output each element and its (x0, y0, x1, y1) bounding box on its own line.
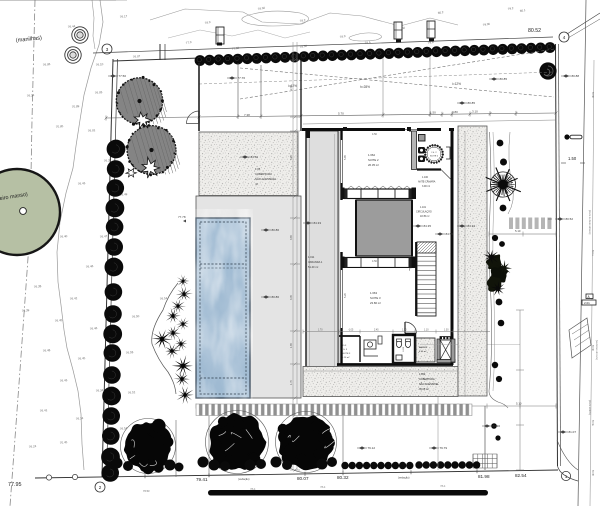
svg-text:NÃO ACESSÍVEL: NÃO ACESSÍVEL (419, 383, 439, 386)
svg-text:1.65: 1.65 (290, 343, 293, 348)
svg-text:5.85: 5.85 (344, 155, 347, 160)
svg-text:SUITE 3: SUITE 3 (342, 353, 351, 355)
svg-text:1.10: 1.10 (424, 330, 429, 332)
svg-text:3.10: 3.10 (472, 110, 478, 114)
svg-text:80.86: 80.86 (272, 295, 280, 299)
svg-text:I.S. 3: I.S. 3 (342, 349, 348, 351)
svg-text:3: 3 (106, 47, 109, 52)
svg-text:76.53: 76.53 (143, 489, 150, 493)
svg-text:79.41: 79.41 (196, 477, 208, 482)
svg-text:1.70: 1.70 (318, 330, 323, 332)
svg-text:(muro de beto armado): (muro de beto armado) (588, 210, 591, 235)
svg-text:VARANDA 1: VARANDA 1 (308, 260, 323, 264)
svg-text:80.4x: 80.4x (591, 420, 593, 426)
svg-text:79.79: 79.79 (440, 446, 448, 450)
svg-text:1.90: 1.90 (402, 330, 407, 332)
svg-text:/76.4: /76.4 (320, 486, 326, 489)
svg-text:84.55: 84.55 (446, 232, 454, 236)
svg-text:79.12: 79.12 (368, 446, 376, 450)
svg-text:80.1x: 80.1x (591, 250, 593, 256)
svg-text:2.45: 2.45 (374, 330, 379, 332)
svg-text:26.35 m²: 26.35 m² (368, 163, 379, 167)
svg-text:4: 4 (563, 35, 566, 40)
svg-text:ANTE-CÂMARA: ANTE-CÂMARA (418, 181, 436, 184)
svg-text:2.95: 2.95 (290, 85, 293, 90)
svg-text:81.98: 81.98 (478, 474, 490, 479)
svg-text:3.95: 3.95 (290, 155, 293, 160)
svg-text:5.20: 5.20 (344, 293, 347, 298)
svg-text:I.S. 2: I.S. 2 (431, 152, 437, 154)
svg-text:80.52: 80.52 (566, 217, 574, 221)
svg-text:4.05 m²: 4.05 m² (419, 350, 427, 353)
svg-text:82.54: 82.54 (515, 473, 527, 478)
svg-text:ARRUM.: ARRUM. (419, 346, 428, 349)
svg-text:1.30: 1.30 (444, 330, 449, 332)
svg-text:23.80 m²: 23.80 m² (370, 301, 381, 305)
svg-text:4.50: 4.50 (372, 133, 377, 136)
svg-text:80.32: 80.32 (337, 475, 349, 480)
svg-text:80.85: 80.85 (500, 77, 508, 81)
svg-text:COBERTURA: COBERTURA (419, 378, 435, 381)
svg-text:SUITE 2: SUITE 2 (430, 156, 439, 158)
svg-text:3.90 m²: 3.90 m² (422, 185, 430, 188)
svg-text:80.52: 80.52 (528, 28, 541, 34)
svg-text:3.65: 3.65 (290, 235, 293, 240)
svg-text:80.45: 80.45 (591, 470, 593, 476)
svg-text:18.35 m²: 18.35 m² (420, 215, 430, 218)
svg-text:(vedação): (vedação) (398, 476, 410, 480)
svg-text:81.07: 81.07 (569, 430, 577, 434)
svg-text:1.05: 1.05 (255, 167, 261, 171)
svg-text:m²: m² (255, 183, 258, 186)
svg-text:1.062: 1.062 (403, 346, 405, 352)
svg-text:5.10 m²: 5.10 m² (342, 356, 350, 359)
svg-text:5.70: 5.70 (338, 112, 344, 116)
svg-text:5.10: 5.10 (515, 229, 521, 233)
svg-text:SUITE 3: SUITE 3 (370, 296, 381, 300)
svg-text:(vedação): (vedação) (238, 477, 250, 481)
svg-text:84.33: 84.33 (314, 221, 322, 225)
svg-text:1.50: 1.50 (568, 156, 577, 161)
svg-text:1.70: 1.70 (290, 380, 293, 385)
svg-text:80.85: 80.85 (468, 101, 476, 105)
svg-text:7.38: 7.38 (244, 113, 250, 117)
svg-text:1.101: 1.101 (420, 206, 427, 209)
svg-text:80.46: 80.46 (591, 345, 593, 351)
svg-text:77.78: 77.78 (178, 215, 186, 219)
svg-text:0.80: 0.80 (452, 110, 458, 114)
svg-text:2.01: 2.01 (584, 301, 590, 305)
svg-text:1.100: 1.100 (422, 176, 429, 179)
svg-text:1.663: 1.663 (370, 291, 377, 295)
svg-text:77.50: 77.50 (119, 74, 127, 78)
svg-text:2: 2 (99, 485, 102, 490)
svg-text:80.46: 80.46 (591, 92, 593, 98)
svg-text:80.07: 80.07 (297, 476, 309, 481)
svg-text:84.56: 84.56 (251, 155, 259, 159)
svg-text:SUITE 2: SUITE 2 (368, 158, 379, 162)
svg-text:CIRCULAÇÃO: CIRCULAÇÃO (416, 211, 432, 214)
svg-text:1.011: 1.011 (308, 255, 315, 259)
svg-text:/76.4: /76.4 (440, 485, 446, 488)
svg-text:84.33: 84.33 (468, 224, 476, 228)
svg-text:80.88: 80.88 (572, 74, 580, 78)
svg-text:80.30: 80.30 (493, 424, 501, 428)
svg-text:80.86: 80.86 (272, 228, 280, 232)
svg-text:1.50: 1.50 (430, 111, 436, 115)
svg-text:-1.05: -1.05 (348, 330, 354, 332)
svg-text:77.76: 77.76 (238, 76, 246, 80)
svg-text:(vedacao em rede): (vedacao em rede) (595, 340, 598, 360)
svg-text:35.05 m²: 35.05 m² (419, 388, 429, 391)
svg-text:3.35: 3.35 (290, 295, 293, 300)
svg-text:77.95: 77.95 (8, 482, 22, 488)
svg-text:51.40 m²: 51.40 m² (308, 265, 318, 269)
svg-text:i=12%: i=12% (452, 82, 461, 86)
svg-text:4.50: 4.50 (372, 260, 377, 263)
svg-text:84.35: 84.35 (424, 224, 432, 228)
svg-text:1.662: 1.662 (368, 153, 375, 157)
svg-text:COBERTURA: COBERTURA (255, 172, 272, 176)
svg-text:(muro vizinho): (muro vizinho) (588, 400, 591, 415)
svg-text:h=28%: h=28% (360, 85, 370, 89)
svg-text:1.052: 1.052 (419, 373, 426, 376)
svg-text:5.10: 5.10 (516, 402, 522, 406)
